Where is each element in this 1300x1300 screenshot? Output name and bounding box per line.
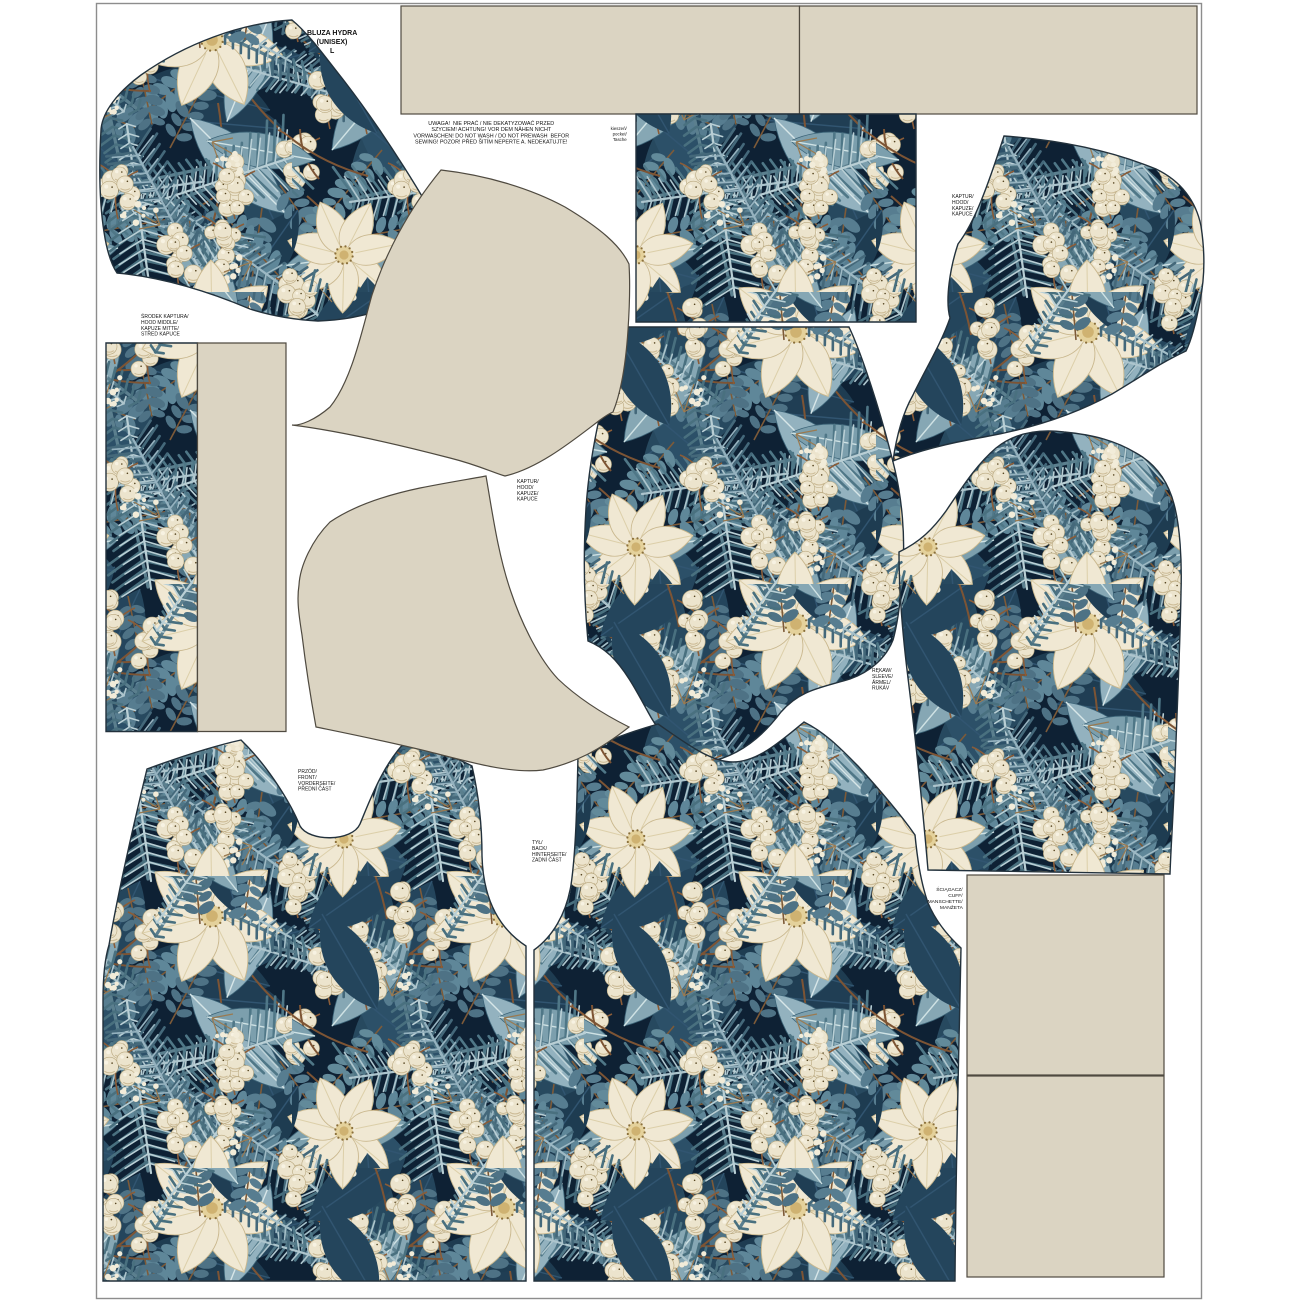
svg-text:UWAGA! NIE PRAĆ / NIE DEKATYZ: UWAGA! NIE PRAĆ / NIE DEKATYZOWAĆ PRZED …	[413, 120, 570, 146]
svg-text:KAPTUR/ HOOD/ KAPUZE/ KAPUCE: KAPTUR/ HOOD/ KAPUZE/ KAPUCE	[517, 479, 540, 503]
svg-text:kieszeń/ pocket/ Tasche: kieszeń/ pocket/ Tasche	[611, 126, 628, 142]
svg-text:KAPTUR/ HOOD/ KAPUZE/ KAPUCE: KAPTUR/ HOOD/ KAPUZE/ KAPUCE	[952, 194, 975, 218]
